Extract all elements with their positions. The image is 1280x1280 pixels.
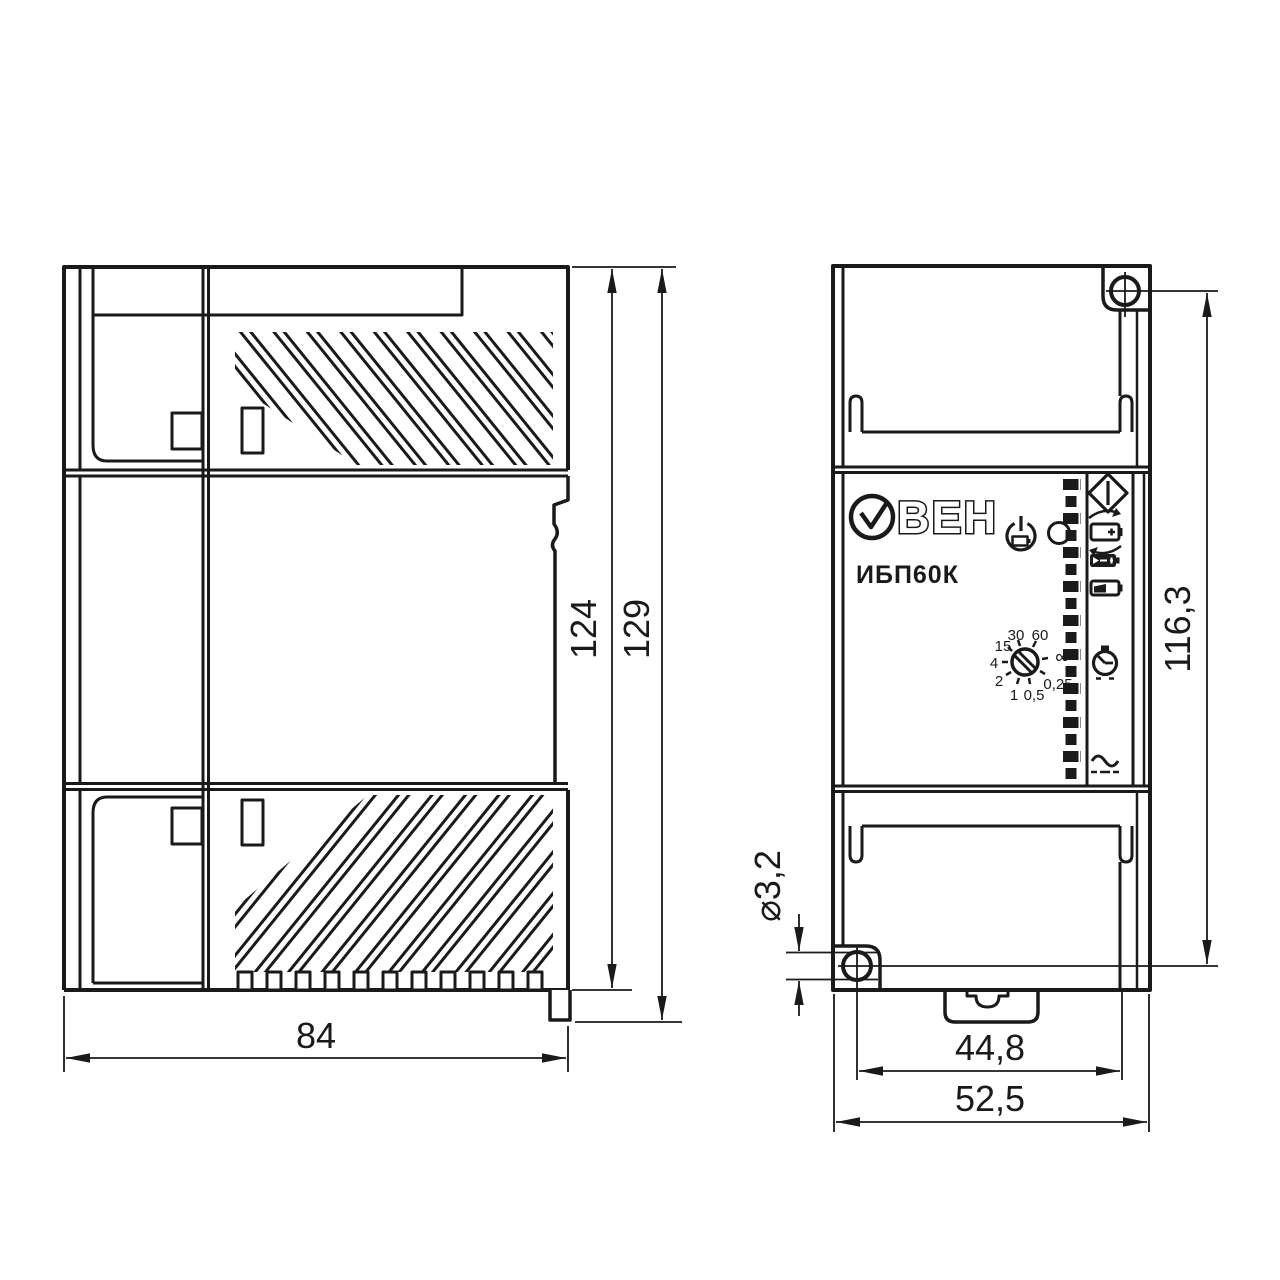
dim-label-525: 52,5 xyxy=(955,1078,1025,1119)
battery-level-icon xyxy=(1091,581,1123,595)
joint-bottom xyxy=(64,784,568,790)
top-lip-line xyxy=(93,268,462,315)
vent-hatch-top xyxy=(235,332,553,465)
joint-top xyxy=(64,470,568,476)
front-view: ВЕН ИБП60К 30 60 ∞ 0,25 0,5 1 xyxy=(747,266,1218,1132)
front-outline xyxy=(833,266,1150,990)
dial-label-1: 1 xyxy=(1010,687,1018,704)
recess-bottom-right xyxy=(242,800,263,845)
bottom-right-tab xyxy=(550,990,570,1020)
technical-drawing-page: 124 129 84 xyxy=(0,0,1280,1280)
dim-label-129: 129 xyxy=(616,599,657,659)
dial-label-4: 4 xyxy=(990,655,998,672)
dial-label-05: 0,5 xyxy=(1024,687,1045,704)
recess-top-right xyxy=(242,408,263,453)
vent-hatch-bottom xyxy=(235,795,553,972)
battery-charge-icon xyxy=(1090,554,1120,567)
dial-label-60: 60 xyxy=(1032,627,1049,644)
brand-text: ВЕН xyxy=(897,492,998,543)
dial-label-025: 0,25 xyxy=(1043,676,1072,693)
dim-label-448: 44,8 xyxy=(955,1027,1025,1068)
dim-label-dia: ⌀3,2 xyxy=(747,850,788,922)
recess-top-left xyxy=(172,413,202,449)
terminal-strip xyxy=(1063,477,1081,783)
dial-label-inf: ∞ xyxy=(1055,647,1069,668)
vent-teeth xyxy=(238,972,542,990)
din-latch-notch xyxy=(967,990,1008,1007)
dim-label-116: 116,3 xyxy=(1157,585,1198,672)
dial-label-2: 2 xyxy=(995,673,1003,690)
recess-bottom-left xyxy=(172,808,202,844)
side-view: 124 129 84 xyxy=(64,267,682,1072)
dim-label-84: 84 xyxy=(296,1015,336,1056)
divider-line xyxy=(203,267,209,990)
dial-label-15: 15 xyxy=(995,638,1012,655)
drawing-canvas: 124 129 84 xyxy=(0,0,1280,1280)
model-label: ИБП60К xyxy=(856,561,959,589)
dim-label-124: 124 xyxy=(563,599,604,659)
